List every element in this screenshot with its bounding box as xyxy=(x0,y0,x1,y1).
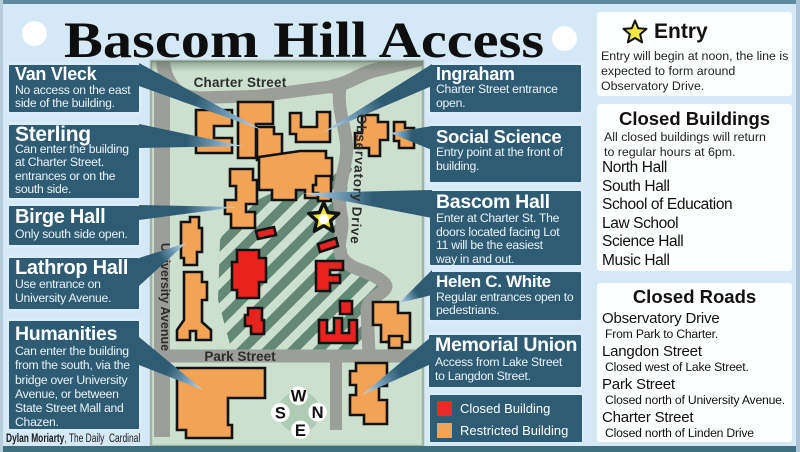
svg-text:University Avenue: University Avenue xyxy=(158,243,172,351)
svg-text:E: E xyxy=(295,422,306,440)
svg-text:W: W xyxy=(291,388,307,406)
svg-text:Park Street: Park Street xyxy=(204,349,276,364)
svg-text:S: S xyxy=(275,405,286,423)
svg-text:Charter Street: Charter Street xyxy=(194,75,287,90)
svg-text:N: N xyxy=(312,404,324,422)
